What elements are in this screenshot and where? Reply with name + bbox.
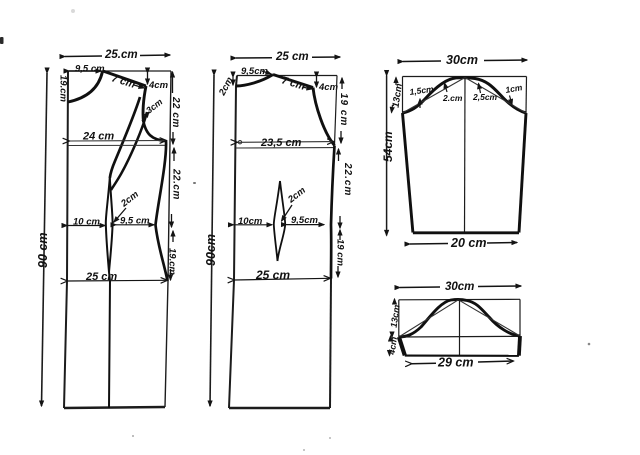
svg-text:9,5cm: 9,5cm — [291, 215, 318, 226]
svg-text:24 cm: 24 cm — [82, 131, 114, 143]
svg-text:25 cm: 25 cm — [85, 271, 117, 283]
svg-text:4cm: 4cm — [318, 82, 339, 93]
svg-text:10cm: 10cm — [238, 216, 263, 227]
svg-text:19.cm: 19.cm — [167, 248, 178, 275]
svg-text:90cm: 90cm — [204, 234, 218, 266]
svg-text:19 cm: 19 cm — [338, 93, 349, 126]
svg-text:54cm: 54cm — [381, 131, 395, 162]
svg-text:19.cm: 19.cm — [58, 75, 69, 102]
svg-text:10 cm: 10 cm — [73, 217, 100, 228]
svg-text:22.cm: 22.cm — [171, 168, 182, 200]
svg-text:90 cm: 90 cm — [36, 233, 50, 268]
svg-text:9,5 cm: 9,5 cm — [120, 216, 150, 227]
svg-text:4cm: 4cm — [148, 80, 169, 91]
svg-text:25.cm: 25.cm — [104, 49, 138, 61]
svg-text:30cm: 30cm — [445, 281, 474, 293]
svg-text:23,5 cm: 23,5 cm — [260, 137, 302, 149]
svg-text:20 cm: 20 cm — [450, 236, 486, 250]
svg-text:25 cm: 25 cm — [255, 268, 290, 282]
svg-text:9,5 cm: 9,5 cm — [75, 64, 105, 75]
svg-text:2,5cm: 2,5cm — [472, 92, 498, 102]
svg-text:25 cm: 25 cm — [275, 51, 309, 63]
svg-text:22.cm: 22.cm — [342, 162, 353, 196]
svg-text:30cm: 30cm — [446, 53, 478, 67]
svg-text:2.cm: 2.cm — [442, 93, 463, 103]
svg-text:29 cm: 29 cm — [437, 356, 473, 370]
svg-text:22 cm: 22 cm — [170, 96, 181, 128]
svg-text:19 cm: 19 cm — [335, 239, 346, 266]
